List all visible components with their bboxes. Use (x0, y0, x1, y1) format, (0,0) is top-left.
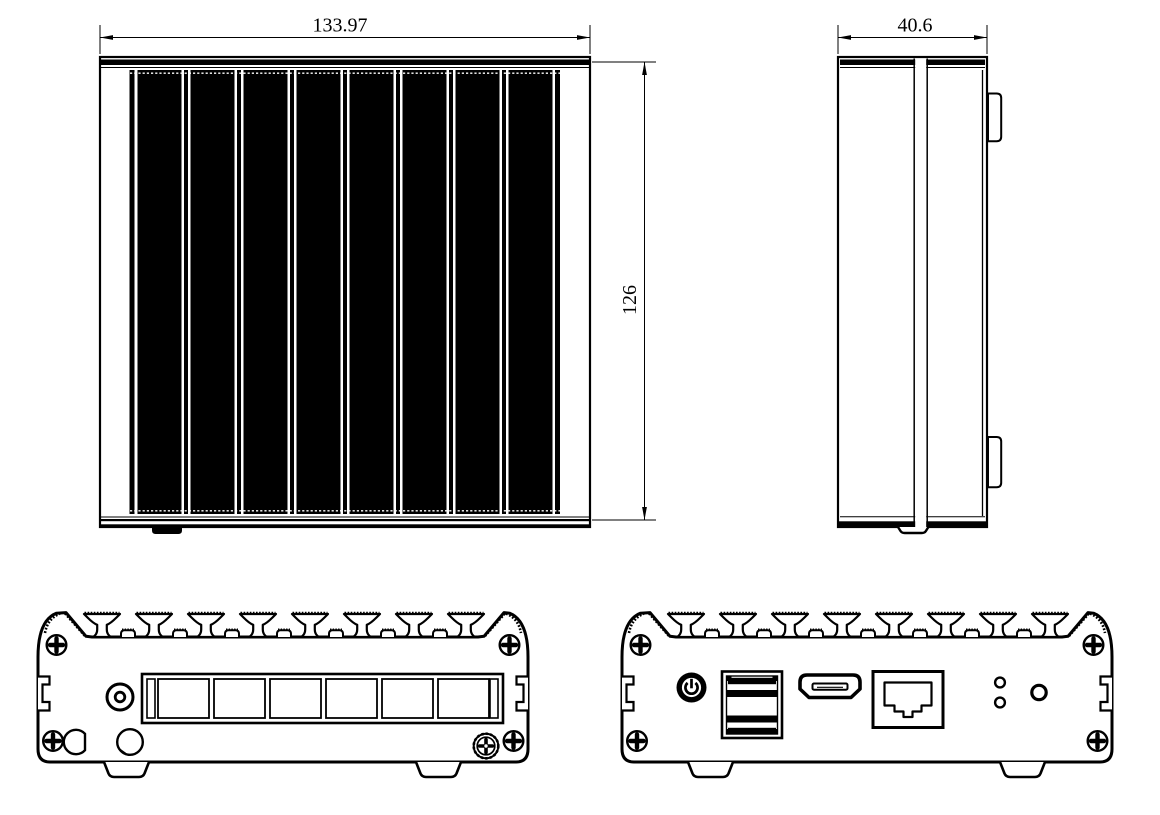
fin-stripe (130, 70, 135, 514)
power-button (677, 673, 707, 703)
hdmi-slot (813, 684, 848, 690)
top-view (100, 57, 590, 534)
usb-tongue (727, 716, 778, 723)
fin-stripe (555, 70, 560, 514)
antenna-hole (64, 730, 85, 754)
arrowhead-icon (974, 35, 987, 40)
mini-pc-dimension-drawing: 133.97 126 40.6 (0, 0, 1160, 815)
fin-panel (403, 70, 447, 514)
heatsink-fin-bump (861, 630, 875, 637)
heatsink-fin-tip (980, 614, 1016, 637)
fin-panel (191, 70, 235, 514)
heatsink-fin-tip (84, 614, 120, 637)
io-slot (214, 679, 265, 718)
rear-panel-view (38, 613, 528, 777)
side-mount-tab (988, 437, 1001, 487)
heatsink-fin-tip (668, 614, 704, 637)
screw-center (484, 744, 487, 747)
fin-panel (509, 70, 553, 514)
usb-tongue (728, 678, 776, 684)
fin-panel (350, 70, 394, 514)
heatsink-fin-bump (173, 630, 187, 637)
rubber-foot (1000, 762, 1045, 777)
led-indicator (995, 698, 1005, 708)
heatsink-fin-tip (136, 614, 172, 637)
rear-edge-plate (100, 519, 590, 521)
heatsink-fin-tip (772, 614, 808, 637)
hdmi-port (800, 675, 860, 698)
usb-tongue (728, 728, 776, 734)
edge-plate (839, 521, 986, 527)
front-panel-view (622, 613, 1112, 777)
heatsink-fin-bump (329, 630, 343, 637)
corner-screw (43, 731, 63, 751)
heatsink-fin-bump (1017, 630, 1031, 637)
dim-height-value: 126 (619, 285, 641, 315)
heatsink-fin-tip (344, 614, 380, 637)
io-slot (326, 679, 377, 718)
dimension-width: 133.97 (100, 15, 590, 55)
usb-port-stack (722, 672, 782, 739)
heatsink-fin-tip (188, 614, 224, 637)
heatsink-fin-bump (121, 630, 135, 637)
heatsink-fin-tip (824, 614, 860, 637)
io-slot-endcap (147, 679, 155, 718)
front-edge-plate (101, 60, 589, 66)
heatsink-fin-tip (720, 614, 756, 637)
edge-plate (840, 60, 985, 66)
ethernet-port (873, 672, 943, 728)
side-view-body (838, 57, 987, 527)
side-view (838, 57, 1001, 533)
fin-panel (456, 70, 500, 514)
corner-screw (627, 731, 647, 751)
rubber-foot (104, 762, 149, 777)
usb-tongue (727, 690, 778, 697)
fin-separator (343, 70, 347, 514)
corner-screw (500, 635, 520, 655)
dim-width-value: 133.97 (313, 15, 368, 37)
fin-separator (237, 70, 241, 514)
fin-panel (244, 70, 288, 514)
arrowhead-icon (642, 507, 647, 520)
heatsink-fin-bump (757, 630, 771, 637)
io-slot (438, 679, 489, 718)
dimension-depth: 40.6 (838, 15, 987, 55)
reset-button (1032, 685, 1046, 699)
corner-screw (504, 731, 524, 751)
fin-separator (502, 70, 506, 514)
arrowhead-icon (838, 35, 851, 40)
corner-screw (631, 635, 651, 655)
rubber-foot (898, 527, 928, 533)
heatsink-fin-tip (448, 614, 484, 637)
rubber-foot (152, 527, 182, 534)
rear-edge-plate (100, 524, 590, 527)
corner-screw (47, 635, 67, 655)
rubber-foot (688, 762, 733, 777)
heatsink-fin-tip (396, 614, 432, 637)
heatsink-fin-bump (965, 630, 979, 637)
led-indicator (995, 678, 1005, 688)
io-slot-row (142, 674, 503, 723)
rubber-foot (416, 762, 461, 777)
fin-separator (449, 70, 453, 514)
arrowhead-icon (642, 62, 647, 75)
plate-gap (915, 516, 926, 528)
ground-screw (474, 734, 499, 759)
arrowhead-icon (100, 35, 113, 40)
io-slot (382, 679, 433, 718)
heatsink-fin-tip (928, 614, 964, 637)
heatsink-fin-tip (240, 614, 276, 637)
fin-separator (184, 70, 188, 514)
io-slot-endcap (490, 679, 498, 718)
side-mount-tab (988, 94, 1001, 142)
plate-gap (915, 59, 926, 69)
fin-separator (396, 70, 400, 514)
heatsink-fin-bump (277, 630, 291, 637)
heatsink-fin-bump (433, 630, 447, 637)
dc-jack (107, 684, 133, 710)
dc-jack-pin (115, 692, 125, 702)
corner-screw (1088, 731, 1108, 751)
heatsink-fin-bump (225, 630, 239, 637)
heatsink-fin-bump (809, 630, 823, 637)
io-slot (158, 679, 209, 718)
heatsink-fin-bump (913, 630, 927, 637)
arrowhead-icon (577, 35, 590, 40)
heatsink-fin-tip (292, 614, 328, 637)
fin-panel (297, 70, 341, 514)
fin-panel (138, 70, 182, 514)
heatsink-fin-tip (1032, 614, 1068, 637)
heatsink-fins (130, 70, 561, 514)
dim-depth-value: 40.6 (898, 15, 933, 37)
heatsink-fin-bump (381, 630, 395, 637)
heatsink-fin-bump (705, 630, 719, 637)
fin-separator (290, 70, 294, 514)
io-slot (270, 679, 321, 718)
antenna-hole (117, 729, 143, 755)
heatsink-fin-tip (876, 614, 912, 637)
dimension-height: 126 (592, 62, 656, 520)
corner-screw (1084, 635, 1104, 655)
technical-drawing-canvas: 133.97 126 40.6 (0, 0, 1160, 815)
